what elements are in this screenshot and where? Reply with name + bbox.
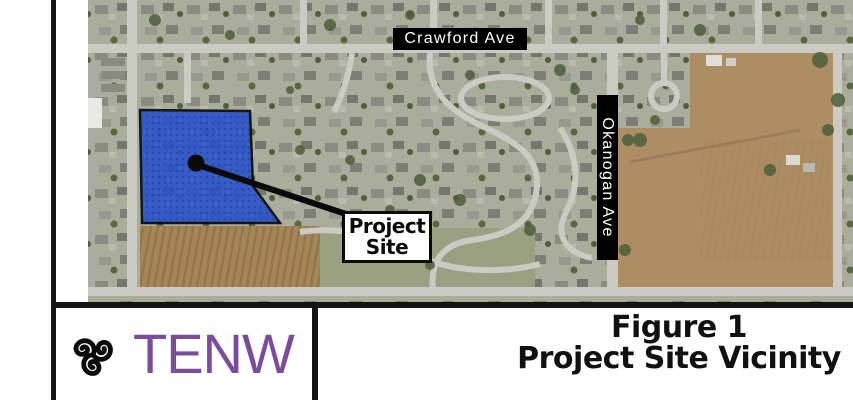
figure-number: Figure 1: [509, 312, 849, 343]
south-field: [140, 226, 320, 288]
logo-panel: TENW: [56, 308, 312, 400]
south-road: [88, 287, 853, 296]
project-site-callout-line2: Site: [366, 237, 408, 258]
okanogan-ave-label: Okanogan Ave: [597, 95, 618, 260]
east-road: [833, 44, 842, 296]
logo-text: TENW: [133, 326, 294, 382]
west-road: [127, 0, 137, 296]
figure-title-block: Figure 1 Project Site Vicinity: [509, 312, 849, 374]
east-field-furrows: [700, 140, 830, 260]
triskelion-icon: [66, 326, 120, 382]
crawford-ave-label: Crawford Ave: [393, 28, 527, 50]
site-marker-dot: [188, 155, 205, 172]
project-site-callout: Project Site: [342, 211, 432, 263]
figure-title-panel: Figure 1 Project Site Vicinity: [318, 308, 853, 400]
project-site-callout-line1: Project: [349, 216, 426, 237]
figure-title: Project Site Vicinity: [509, 343, 849, 374]
